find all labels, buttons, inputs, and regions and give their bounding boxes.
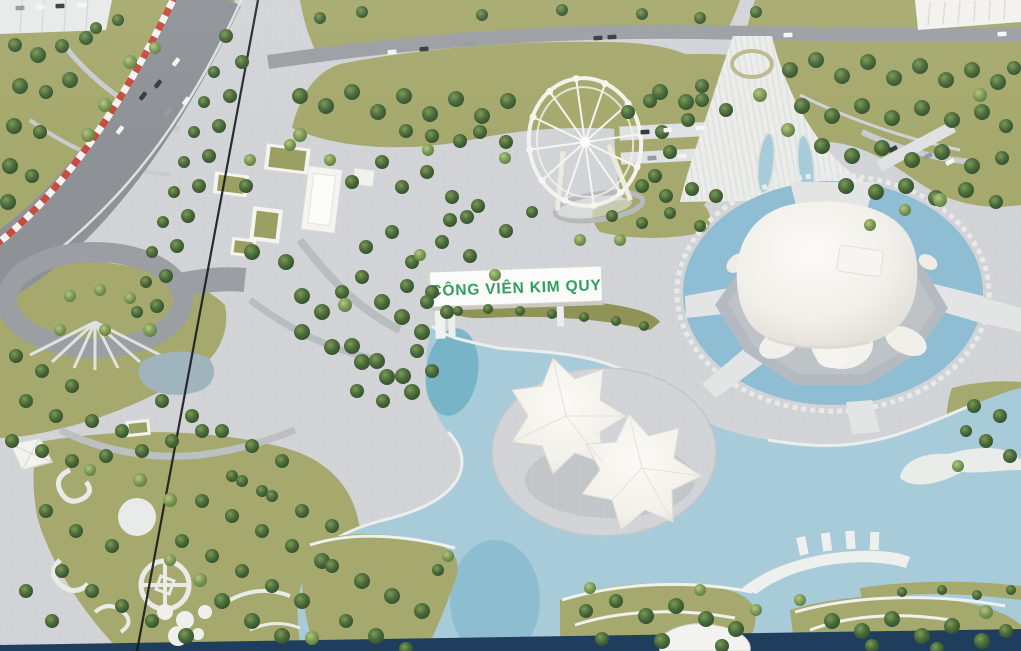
garden-hut [125, 419, 151, 437]
loop-road-stem [180, 279, 245, 285]
garden-disc [118, 498, 156, 536]
pond [139, 352, 215, 395]
model-photo: CÔNG VIÊN KIM QUY [0, 0, 1021, 651]
park-model-scene: CÔNG VIÊN KIM QUY [0, 0, 1021, 651]
turtle-shell [737, 201, 918, 347]
shell-crest [836, 245, 883, 277]
